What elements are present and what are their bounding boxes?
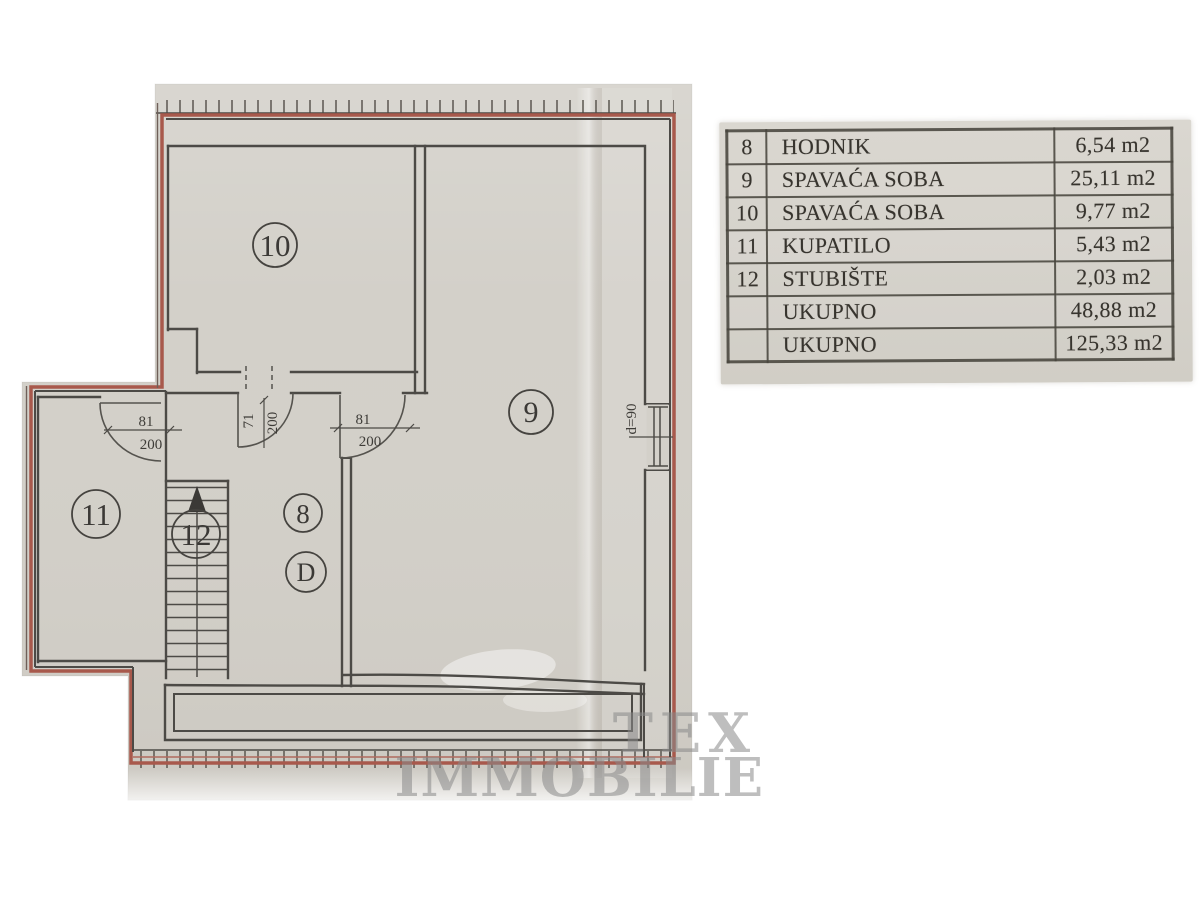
room-name-cell: UKUPNO — [768, 294, 1056, 329]
door-dim-width: 81 — [356, 412, 371, 428]
door-dim-height: 200 — [265, 412, 281, 435]
room-label-D: D — [297, 558, 316, 587]
room-area-cell: 6,54 m2 — [1054, 128, 1172, 162]
table-row: UKUPNO 125,33 m2 — [728, 326, 1173, 362]
room-label-10: 10 — [260, 228, 291, 263]
room-area-cell: 25,11 m2 — [1055, 161, 1173, 195]
room-label-11: 11 — [81, 497, 111, 532]
room-name-cell: UKUPNO — [768, 327, 1056, 362]
room-number-cell: 8 — [727, 131, 767, 164]
room-number-cell: 9 — [727, 164, 767, 197]
room-number-cell — [728, 329, 768, 362]
table-row: 12 STUBIŠTE 2,03 m2 — [728, 260, 1173, 296]
bottom-hatch-border — [133, 750, 672, 768]
top-hatch-border — [156, 100, 676, 113]
room-area-cell: 125,33 m2 — [1056, 326, 1174, 360]
room-label-12: 12 — [181, 517, 212, 552]
table-row: 10 SPAVAĆA SOBA 9,77 m2 — [727, 194, 1172, 230]
room-area-cell: 2,03 m2 — [1055, 260, 1173, 294]
table-row: UKUPNO 48,88 m2 — [728, 293, 1173, 329]
room-area-cell: 5,43 m2 — [1055, 227, 1173, 261]
area-legend-table: 8 HODNIK 6,54 m2 9 SPAVAĆA SOBA 25,11 m2… — [725, 127, 1174, 364]
room-area-cell: 48,88 m2 — [1055, 293, 1173, 327]
room-area-cell: 9,77 m2 — [1055, 194, 1173, 228]
room-name-cell: STUBIŠTE — [767, 261, 1055, 296]
room-number-cell — [728, 296, 768, 329]
room-label-8: 8 — [296, 499, 310, 529]
table-row: 8 HODNIK 6,54 m2 — [727, 128, 1172, 164]
room-name-cell: KUPATILO — [767, 228, 1055, 263]
door-dim-height: 200 — [359, 434, 382, 450]
area-legend: 8 HODNIK 6,54 m2 9 SPAVAĆA SOBA 25,11 m2… — [719, 120, 1193, 385]
door-dim-width: 71 — [241, 414, 257, 429]
paper-fold-highlight — [576, 88, 602, 778]
scanned-floor-plan-page: 81 200 71 200 81 200 d=90 10 9 11 12 — [0, 0, 1200, 903]
door-dim-height: 200 — [140, 437, 163, 453]
window-dim-label: d=90 — [624, 404, 640, 435]
room-name-cell: HODNIK — [767, 129, 1055, 164]
door-dim-width: 81 — [139, 414, 154, 430]
room-label-9: 9 — [524, 396, 539, 429]
room-name-cell: SPAVAĆA SOBA — [767, 195, 1055, 230]
room-number-cell: 11 — [727, 230, 767, 263]
room-number-cell: 10 — [727, 197, 767, 230]
room-name-cell: SPAVAĆA SOBA — [767, 162, 1055, 197]
room-number-cell: 12 — [728, 263, 768, 296]
table-row: 9 SPAVAĆA SOBA 25,11 m2 — [727, 161, 1172, 197]
table-row: 11 KUPATILO 5,43 m2 — [727, 227, 1172, 263]
